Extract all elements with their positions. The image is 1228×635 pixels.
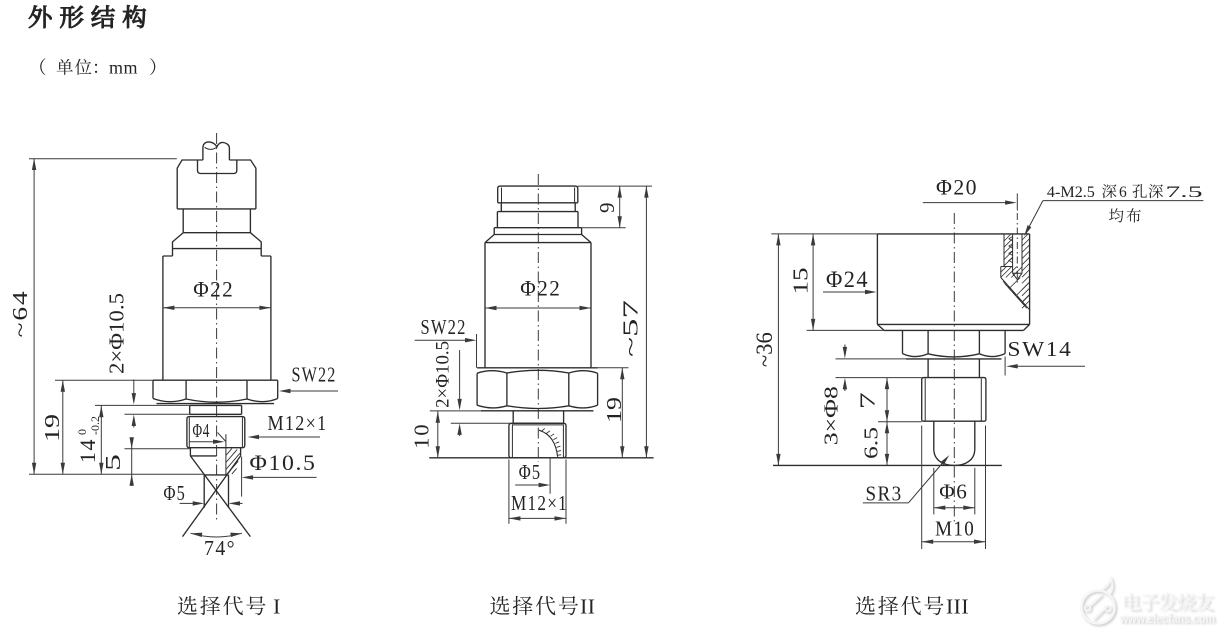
svg-text:SW14: SW14 <box>1008 337 1073 361</box>
svg-text:~36: ~36 <box>752 332 777 367</box>
svg-text:www.elecfans.com: www.elecfans.com <box>1119 611 1215 626</box>
svg-text:III: III <box>946 595 969 619</box>
svg-text:M12×1: M12×1 <box>511 491 568 515</box>
svg-text:mm: mm <box>109 58 138 78</box>
svg-text:~64: ~64 <box>8 289 32 337</box>
svg-text:Φ22: Φ22 <box>193 277 234 302</box>
svg-text:M10: M10 <box>935 517 975 541</box>
svg-text:15: 15 <box>789 268 813 295</box>
svg-text:9: 9 <box>595 201 619 213</box>
svg-text:Φ22: Φ22 <box>520 276 561 301</box>
svg-text:19: 19 <box>40 414 64 442</box>
svg-text:II: II <box>580 595 595 619</box>
svg-text:SR3: SR3 <box>866 482 903 506</box>
svg-text:2×Φ10.5: 2×Φ10.5 <box>433 341 454 408</box>
svg-text:4-M2.5: 4-M2.5 <box>1047 184 1095 201</box>
svg-text:3×Φ8: 3×Φ8 <box>821 386 843 445</box>
svg-text:~57: ~57 <box>619 300 643 357</box>
svg-text:SW22: SW22 <box>421 315 467 339</box>
svg-text:2×Φ10.5: 2×Φ10.5 <box>105 293 129 374</box>
svg-text:-0.2: -0.2 <box>88 416 102 435</box>
svg-text:M12×1: M12×1 <box>268 411 328 435</box>
svg-text:7: 7 <box>856 392 880 409</box>
svg-text:Φ24: Φ24 <box>826 267 869 292</box>
svg-text:Φ4: Φ4 <box>193 421 211 442</box>
svg-text:I: I <box>273 595 282 619</box>
svg-text:10: 10 <box>410 423 434 449</box>
svg-text:Φ10.5: Φ10.5 <box>250 450 317 475</box>
svg-text:Φ5: Φ5 <box>164 481 187 505</box>
svg-text:SW22: SW22 <box>292 363 337 387</box>
svg-text:74°: 74° <box>204 536 236 560</box>
svg-text:Φ20: Φ20 <box>936 174 978 199</box>
svg-text:14: 14 <box>75 438 100 463</box>
svg-text:6: 6 <box>1119 184 1127 201</box>
svg-text:6.5: 6.5 <box>861 427 883 459</box>
svg-text:0: 0 <box>75 429 89 435</box>
svg-text:Φ5: Φ5 <box>519 460 542 484</box>
svg-text:7.5: 7.5 <box>1166 184 1203 201</box>
svg-text:5: 5 <box>101 454 125 471</box>
svg-text:Φ6: Φ6 <box>939 480 968 504</box>
svg-text:19: 19 <box>602 397 626 423</box>
